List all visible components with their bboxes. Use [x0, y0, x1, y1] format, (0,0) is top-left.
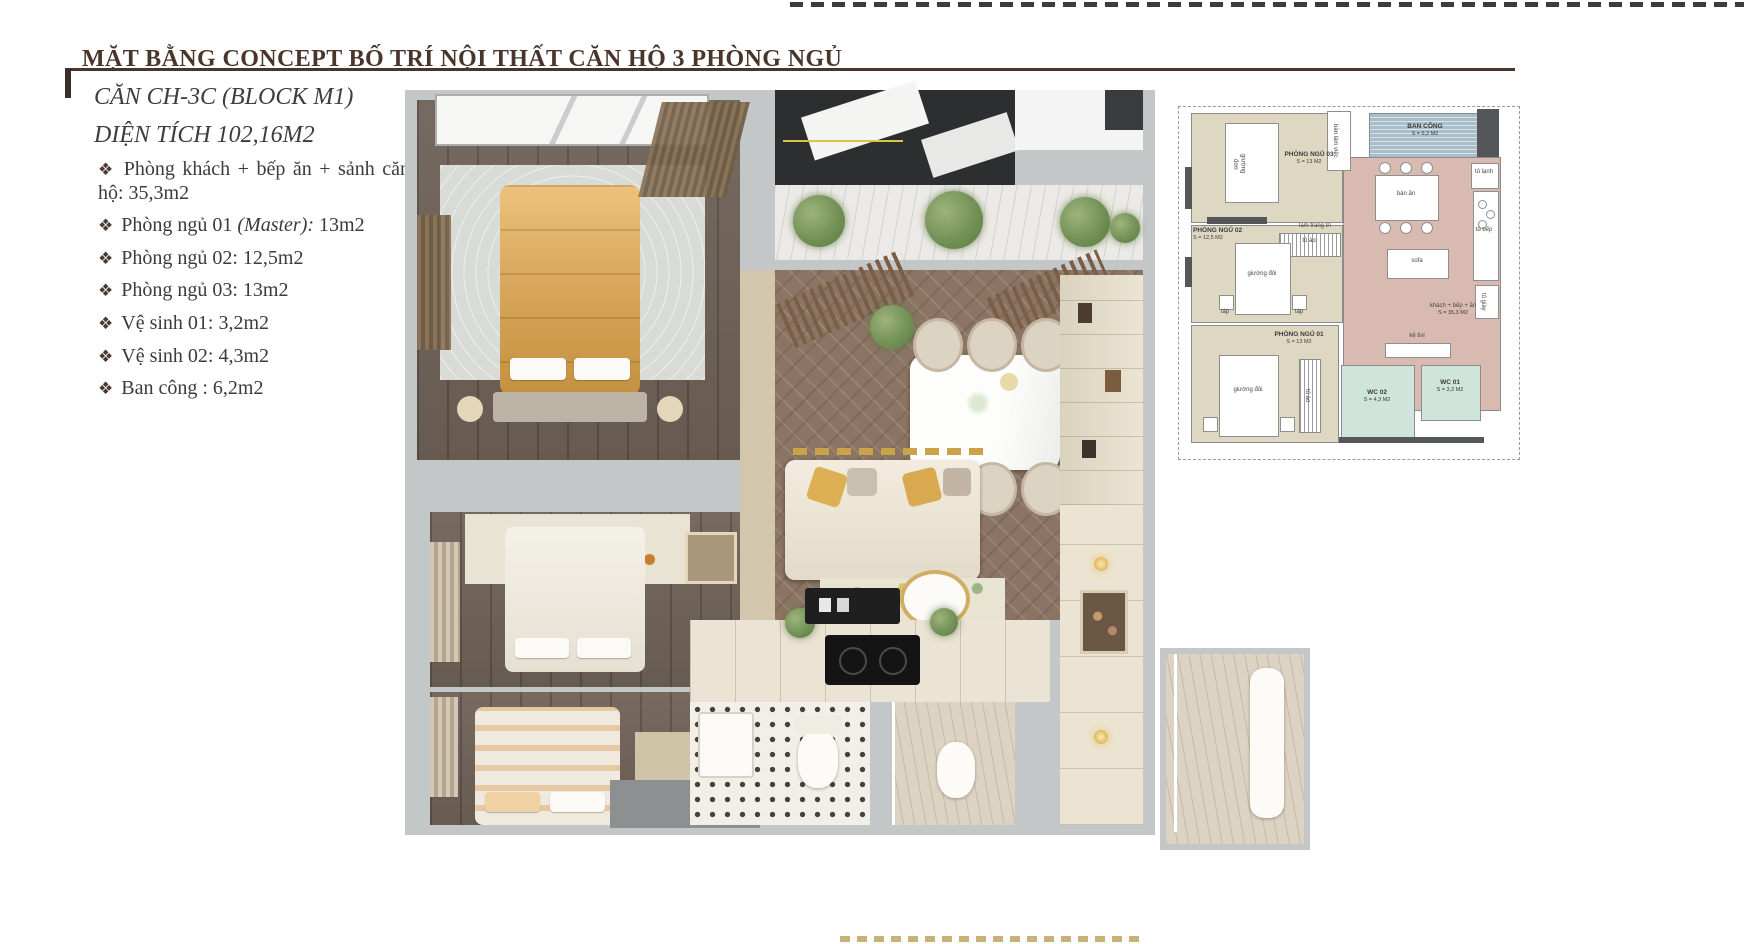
list-item: ❖Vệ sinh 02: 4,3m2: [98, 345, 410, 369]
plan-chair: [1400, 222, 1412, 234]
bottom-gold-dashes: [840, 936, 1140, 942]
burner: [879, 647, 907, 675]
plan-kitchen-cabinet: [1473, 191, 1499, 281]
render-top-right: [1015, 90, 1143, 150]
plan-nightstand: [1292, 295, 1307, 310]
diamond-bullet-icon: ❖: [98, 249, 113, 268]
toilet-tank: [794, 716, 842, 734]
pillow: [574, 358, 630, 380]
throw-pillow: [901, 466, 942, 507]
skylight-panel: [921, 112, 1019, 178]
plan-nightstand: [1203, 417, 1218, 432]
plan-label-desk: bàn làm việc: [1331, 117, 1338, 165]
plant: [1060, 197, 1110, 247]
plant: [1110, 213, 1140, 243]
table-decor: [1000, 373, 1018, 391]
shelving-column: [1060, 275, 1143, 505]
plan-label-nightstand: táp: [1215, 309, 1235, 316]
plan-burner: [1486, 210, 1495, 219]
diamond-bullet-icon: ❖: [98, 216, 113, 235]
plant: [925, 191, 983, 249]
plan-wc2: [1341, 365, 1415, 443]
plan-chair: [1400, 162, 1412, 174]
wall-segment: [1207, 217, 1267, 224]
render-3d-floorplan: [405, 90, 1155, 835]
side-table: [685, 532, 737, 584]
room-area-list: ❖Phòng khách + bếp ăn + sảnh căn hộ: 35,…: [98, 158, 410, 410]
dining-chair: [913, 318, 963, 372]
toilet: [937, 742, 975, 798]
plan-label-balcony: BAN CÔNGS = 6,2 M2: [1381, 123, 1469, 137]
sink-counter: [698, 712, 754, 778]
plan-label-fridge: tủ lạnh: [1469, 169, 1499, 176]
plan-label-double-bed: giường đôi: [1237, 271, 1287, 278]
headboard: [493, 392, 647, 422]
dining-chair: [967, 318, 1017, 372]
pillow: [515, 638, 569, 658]
throw-pillow: [806, 466, 849, 509]
toilet: [798, 730, 838, 788]
plan-tv-shelf: [1385, 343, 1451, 358]
bathroom-2: [892, 702, 1015, 825]
plan-nightstand: [1280, 417, 1295, 432]
list-item: ❖Vệ sinh 01: 3,2m2: [98, 312, 410, 336]
plan-chair: [1379, 222, 1391, 234]
plant: [930, 608, 958, 636]
plan-label-shoe-cabinet: tủ giày: [1479, 289, 1486, 315]
diamond-bullet-icon: ❖: [98, 314, 113, 333]
framed-picture: [1080, 590, 1128, 654]
list-item: ❖Phòng khách + bếp ăn + sảnh căn hộ: 35,…: [98, 158, 410, 205]
sofa: [785, 460, 980, 580]
plan-label-double-bed: giường đôi: [1223, 387, 1273, 394]
plan-nightstand: [1219, 295, 1234, 310]
gold-wall-art: [793, 448, 983, 455]
top-dashed-divider: [790, 2, 1744, 7]
nightstand: [657, 396, 683, 422]
technical-floorplan: PHÒNG NGỦ 03S = 13 M2 giường đơn bàn làm…: [1178, 106, 1520, 460]
skylight-panel: [801, 81, 929, 161]
bathtub: [1250, 668, 1284, 818]
table-decor: [965, 390, 991, 416]
pillow: [485, 792, 540, 812]
curtain: [430, 697, 458, 797]
plan-burner: [1478, 200, 1487, 209]
plan-label-wc1: WC 01S = 3,2 M2: [1425, 379, 1475, 393]
plan-label-kitchen-cabinet: tủ bếp: [1469, 227, 1499, 234]
pillow: [577, 638, 631, 658]
dark-sliver: [1105, 90, 1143, 130]
kitchen-counter: [690, 620, 1050, 702]
wall-sconce: [1094, 730, 1108, 744]
plan-label-decor-slats: lam trang trí: [1287, 223, 1343, 230]
plan-label-single-bed: giường đơn: [1231, 149, 1245, 179]
plan-label-sofa: sofa: [1391, 258, 1443, 265]
media-box: [805, 588, 900, 624]
wall-segment: [1477, 109, 1499, 157]
shelf-decor: [1078, 303, 1092, 323]
list-item: ❖Ban công : 6,2m2: [98, 377, 410, 401]
plan-label-tv-shelf: kệ tivi: [1391, 333, 1443, 340]
plan-chair: [1421, 222, 1433, 234]
diamond-bullet-icon: ❖: [98, 379, 113, 398]
pillow: [510, 358, 566, 380]
curtain: [417, 215, 451, 350]
brochure-page: { "title": "MẶT BẰNG CONCEPT BỐ TRÍ NỘI …: [0, 0, 1744, 944]
pillow: [550, 792, 605, 812]
diamond-bullet-icon: ❖: [98, 281, 113, 300]
logo-glyph: [837, 598, 849, 612]
render-planter-band: [775, 185, 1143, 260]
diamond-bullet-icon: ❖: [98, 160, 116, 179]
bathroom-1: [690, 702, 870, 825]
plant: [793, 195, 845, 247]
nightstand: [457, 396, 483, 422]
wall-sconce: [1094, 557, 1108, 571]
plan-double-bed: [1219, 355, 1279, 437]
throw-pillow: [847, 468, 877, 496]
plan-label-bedroom2: PHÒNG NGỦ 02S = 12,5 M2: [1193, 227, 1257, 241]
burner: [839, 647, 867, 675]
glass-wall: [1174, 654, 1177, 832]
glass-wall: [892, 702, 895, 825]
plan-label-dining-table: bàn ăn: [1379, 191, 1433, 198]
throw-pillow: [943, 468, 971, 496]
plan-chair: [1379, 162, 1391, 174]
plan-label-wardrobe: tủ áo: [1287, 238, 1331, 245]
shelf-decor: [1105, 370, 1121, 392]
render-balcony-dark: [775, 90, 1015, 185]
accent-line: [783, 140, 903, 142]
title-underline: [65, 68, 1515, 71]
list-item: ❖Phòng ngủ 03: 13m2: [98, 279, 410, 303]
logo-glyph: [819, 598, 831, 612]
plan-label-nightstand: táp: [1289, 309, 1309, 316]
plan-label-wardrobe: tủ áo: [1303, 383, 1310, 409]
plant: [870, 305, 914, 349]
wall-segment: [1185, 167, 1192, 209]
render-bedroom1: [417, 100, 740, 460]
plan-label-bedroom1: PHÒNG NGỦ 01S = 13 M2: [1267, 331, 1331, 345]
list-item: ❖Phòng ngủ 02: 12,5m2: [98, 247, 410, 271]
plan-double-bed: [1235, 243, 1291, 315]
unit-area: DIỆN TÍCH 102,16M2: [94, 122, 315, 149]
wardrobe-column: [1060, 505, 1143, 825]
curtain: [430, 542, 460, 662]
shelf-decor: [1082, 440, 1096, 458]
list-item: ❖Phòng ngủ 01 (Master): 13m2: [98, 214, 410, 238]
title-underline-endcap: [65, 68, 71, 98]
wall-segment: [1185, 257, 1192, 287]
plan-chair: [1421, 162, 1433, 174]
diamond-bullet-icon: ❖: [98, 347, 113, 366]
plan-label-wc2: WC 02S = 4,3 M2: [1347, 389, 1407, 403]
cooktop: [825, 635, 920, 685]
render-bathroom-3: [1160, 648, 1310, 850]
wall-segment: [1339, 437, 1484, 443]
unit-name: CĂN CH-3C (BLOCK M1): [94, 84, 353, 111]
